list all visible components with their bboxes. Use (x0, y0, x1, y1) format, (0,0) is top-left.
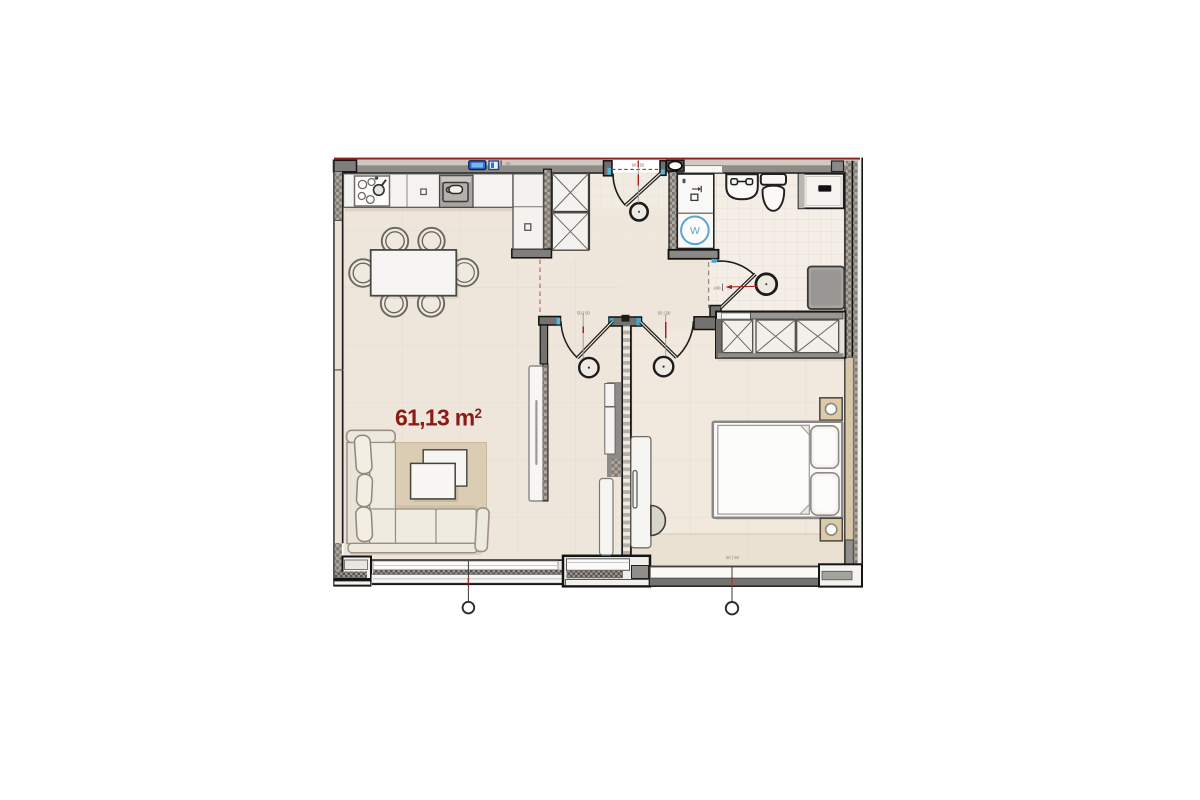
svg-text:50: 50 (506, 161, 511, 166)
svg-text:90 | 50: 90 | 50 (632, 163, 645, 168)
svg-text:61,13 m2: 61,13 m2 (395, 405, 482, 431)
svg-text:50 | 50: 50 | 50 (726, 555, 740, 560)
svg-text:240: 240 (714, 286, 722, 291)
svg-text:W: W (690, 225, 700, 237)
svg-text:50 | 50: 50 | 50 (577, 311, 590, 316)
svg-text:50 | 50: 50 | 50 (658, 311, 671, 316)
